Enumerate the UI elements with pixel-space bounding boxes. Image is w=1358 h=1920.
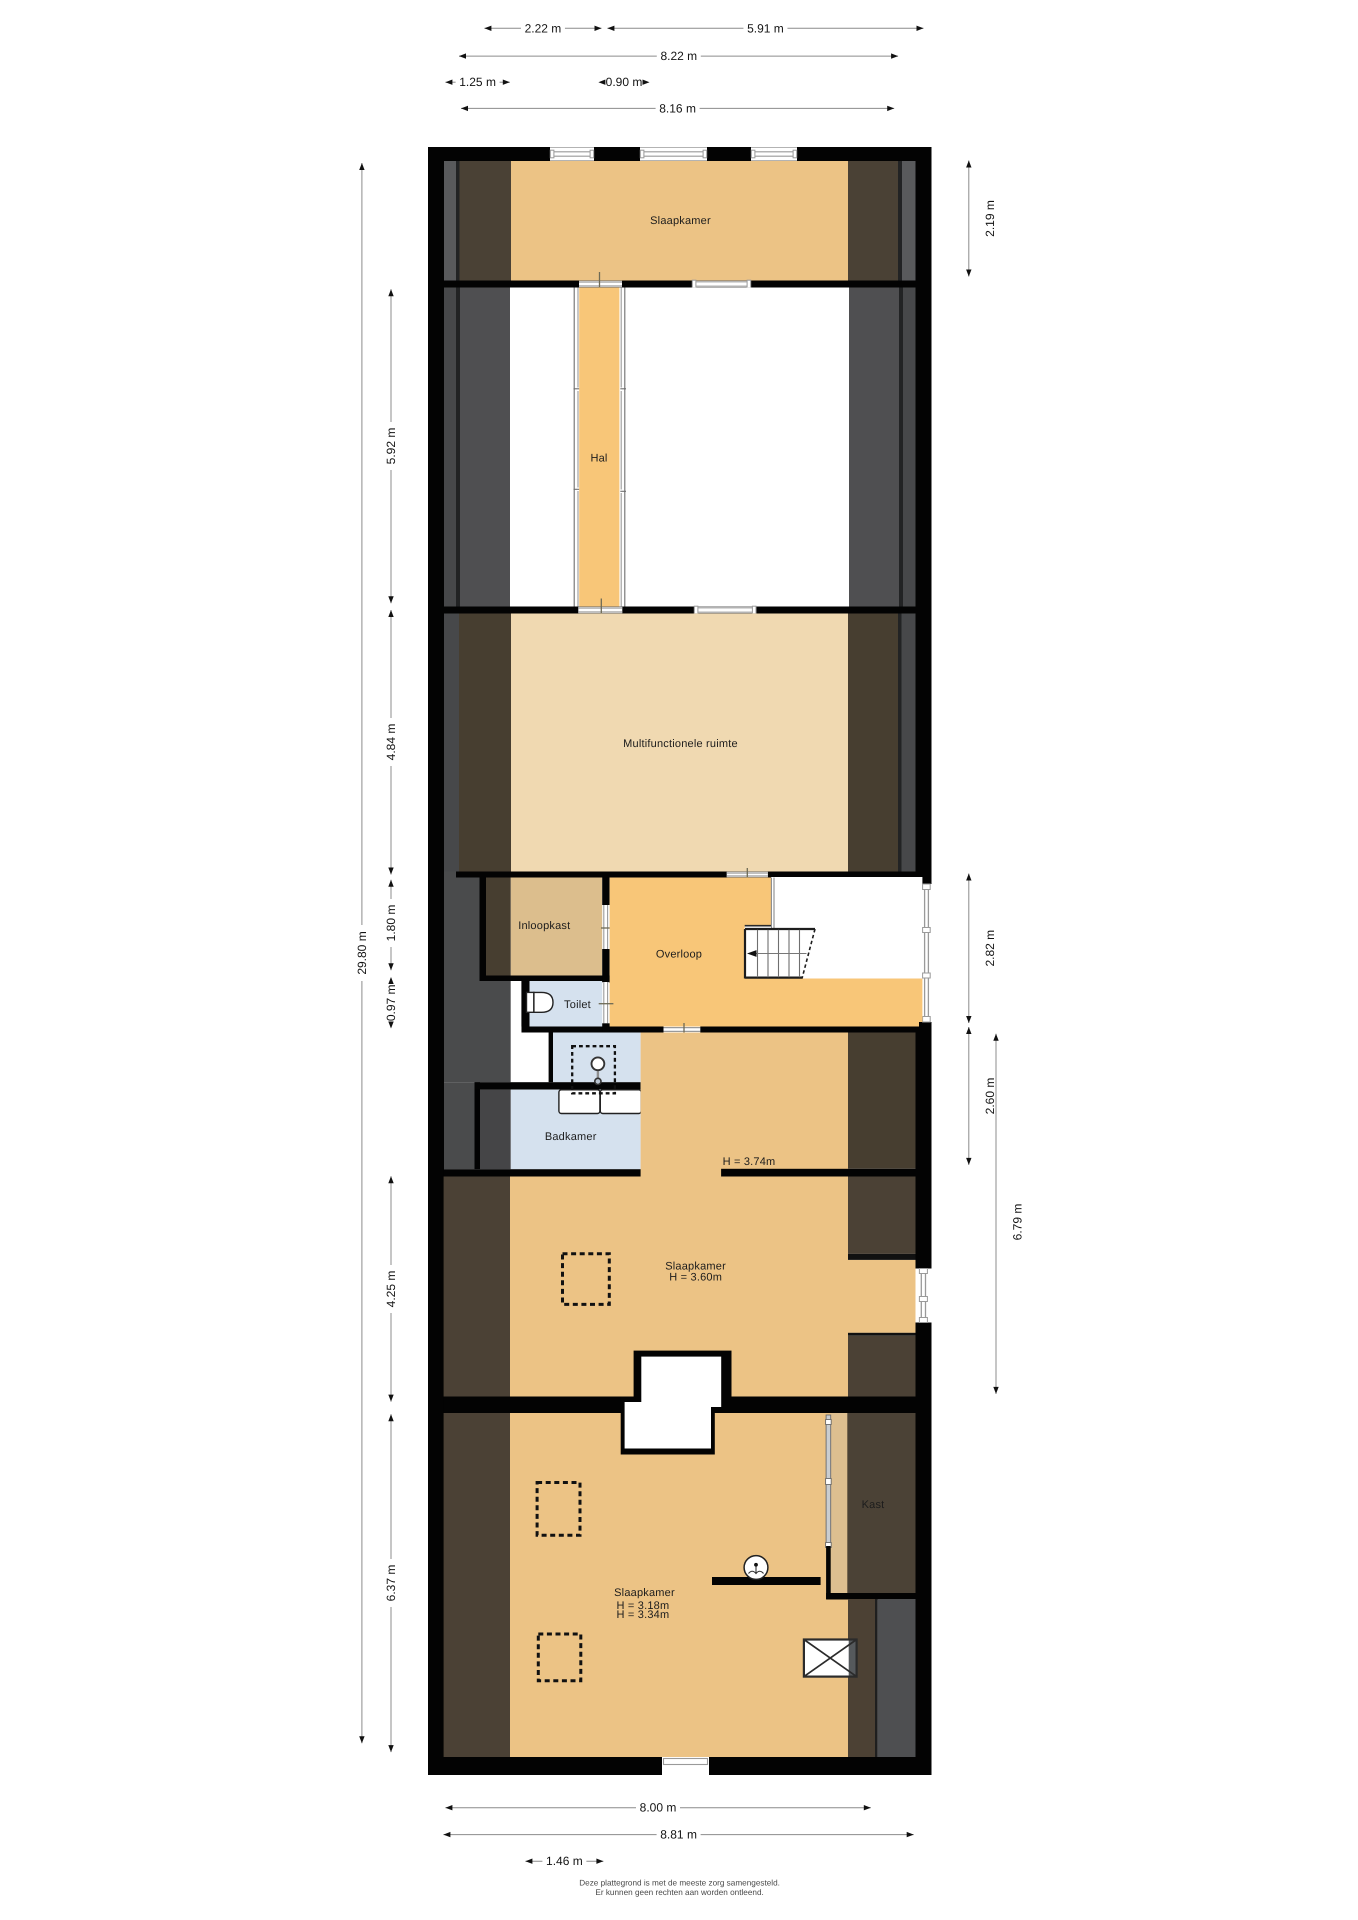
- svg-text:2.22 m: 2.22 m: [525, 21, 562, 35]
- svg-text:H = 3.74m: H = 3.74m: [723, 1156, 776, 1168]
- svg-text:5.92 m: 5.92 m: [384, 428, 398, 465]
- svg-text:0.90 m: 0.90 m: [606, 75, 643, 89]
- svg-text:4.84 m: 4.84 m: [384, 724, 398, 761]
- svg-text:6.79 m: 6.79 m: [1011, 1204, 1025, 1241]
- svg-text:4.25 m: 4.25 m: [384, 1271, 398, 1308]
- svg-text:2.82 m: 2.82 m: [983, 930, 997, 967]
- svg-text:H = 3.60m: H = 3.60m: [669, 1271, 722, 1283]
- svg-text:2.60 m: 2.60 m: [983, 1078, 997, 1115]
- svg-text:Toilet: Toilet: [564, 999, 591, 1011]
- svg-text:2.19 m: 2.19 m: [983, 200, 997, 237]
- svg-text:0.97 m: 0.97 m: [384, 984, 398, 1021]
- svg-text:1.46 m: 1.46 m: [546, 1854, 583, 1868]
- svg-text:8.22 m: 8.22 m: [660, 49, 697, 63]
- svg-text:8.00 m: 8.00 m: [640, 1801, 677, 1815]
- svg-text:8.81 m: 8.81 m: [660, 1828, 697, 1842]
- svg-text:1.80 m: 1.80 m: [384, 905, 398, 942]
- svg-text:Inloopkast: Inloopkast: [518, 920, 570, 932]
- svg-text:Kast: Kast: [862, 1499, 885, 1511]
- svg-text:Deze plattegrond is met de mee: Deze plattegrond is met de meeste zorg s…: [579, 1878, 780, 1887]
- svg-text:Slaapkamer: Slaapkamer: [650, 215, 711, 227]
- svg-text:5.91 m: 5.91 m: [747, 21, 784, 35]
- svg-text:1.25 m: 1.25 m: [459, 75, 496, 89]
- svg-text:Er kunnen geen rechten aan wor: Er kunnen geen rechten aan worden ontlee…: [595, 1888, 763, 1897]
- svg-text:Badkamer: Badkamer: [545, 1131, 597, 1143]
- svg-text:Hal: Hal: [590, 453, 607, 465]
- svg-text:Multifunctionele ruimte: Multifunctionele ruimte: [623, 738, 738, 750]
- svg-text:29.80 m: 29.80 m: [355, 931, 369, 974]
- svg-text:H = 3.34m: H = 3.34m: [616, 1609, 669, 1621]
- svg-text:Slaapkamer: Slaapkamer: [614, 1587, 675, 1599]
- svg-text:8.16 m: 8.16 m: [659, 101, 696, 115]
- svg-text:6.37 m: 6.37 m: [384, 1565, 398, 1602]
- svg-text:Overloop: Overloop: [656, 949, 702, 961]
